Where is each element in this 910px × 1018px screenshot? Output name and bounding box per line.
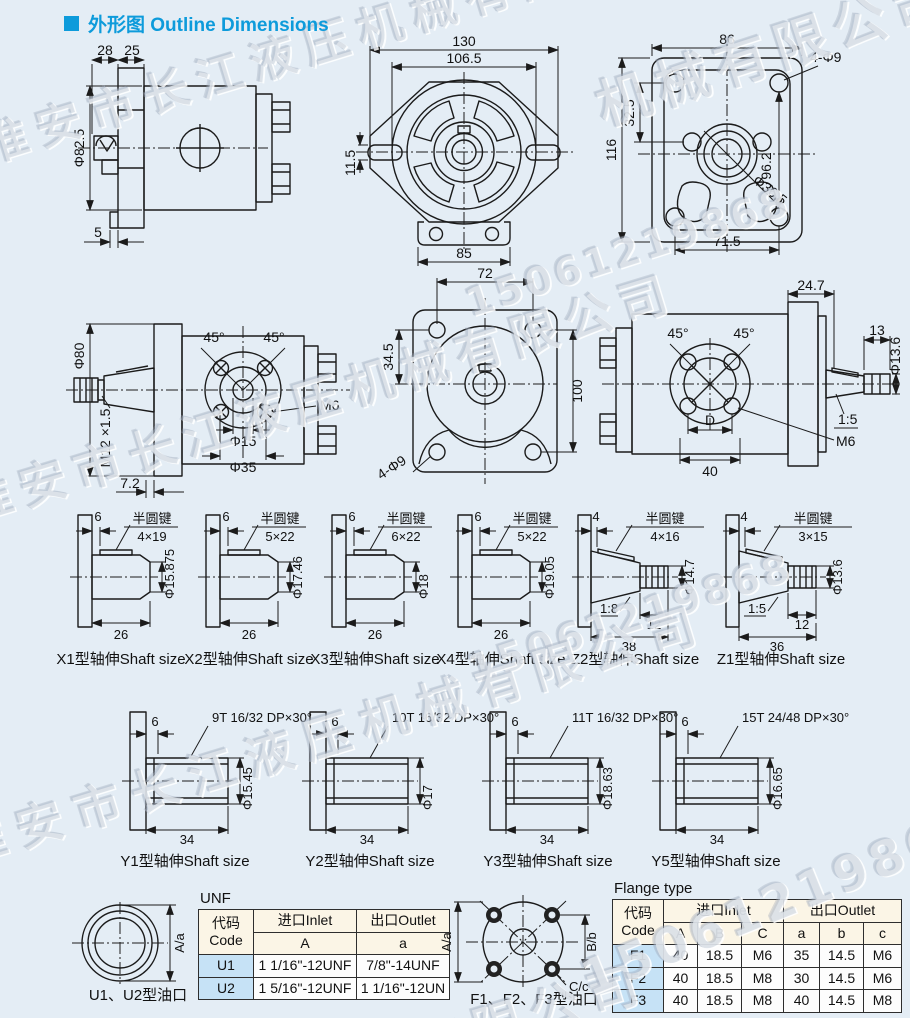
dim-label: 32.5 xyxy=(621,99,637,126)
caption-shaft-z1: Z1型轴伸Shaft size xyxy=(706,648,856,669)
dim-label: 6 xyxy=(474,509,481,524)
dim-label: 34 xyxy=(710,832,724,847)
datasheet-page: 淮安市长江液压机械有限公司 机械有限公司 15061219868 淮安市长江液压… xyxy=(0,0,910,1018)
unf-header-code-zh: 代码 xyxy=(212,915,240,931)
caption-shaft-y3: Y3型轴伸Shaft size xyxy=(468,850,628,871)
dim-label: 34.5 xyxy=(380,343,396,370)
dim-label: Φ19.05 xyxy=(542,556,557,599)
caption-f-port: F1、F2、F3型油口 xyxy=(444,988,624,1009)
dim-label: 4 xyxy=(592,509,599,524)
flange-cell: 14.5 xyxy=(820,945,864,968)
key-size-label: 5×22 xyxy=(265,529,294,544)
dim-label: 26 xyxy=(242,627,256,642)
dim-label: 45° xyxy=(667,325,688,341)
dim-label: 71.5 xyxy=(713,233,740,249)
flange-cell: M8 xyxy=(742,967,784,990)
drawing-shaft-x1: 半圆键 4×19 6 Φ15.875 26 xyxy=(62,505,180,651)
unf-row-inlet: 1 5/16"-12UNF xyxy=(254,977,357,1000)
key-label: 半圆键 xyxy=(260,511,299,526)
dim-label: 28 xyxy=(97,42,113,58)
dim-label: D xyxy=(705,412,715,428)
unf-header-col-a: A xyxy=(254,932,357,955)
dim-label: 4-Φ9 xyxy=(374,452,409,483)
drawing-pump-side-view-threaded-shaft: 45° 45° M6 Φ80 M12 ×1.5 Φ15 Φ35 7.2 xyxy=(58,298,358,500)
unf-row-code: U1 xyxy=(199,955,254,978)
flange-header-col: B xyxy=(698,922,742,945)
flange-header-col: c xyxy=(864,922,902,945)
flange-row-code: F1 xyxy=(613,945,664,968)
flange-cell: M6 xyxy=(864,945,902,968)
dim-label: Φ15 xyxy=(230,433,257,449)
unf-header-code: 代码 Code xyxy=(199,910,254,955)
key-label: 半圆键 xyxy=(793,511,832,526)
flange-table-block: Flange type 代码 Code 进口Inlet 出口Outlet A B… xyxy=(612,880,902,1013)
title-square-icon xyxy=(64,16,79,31)
flange-table-title: Flange type xyxy=(614,880,902,897)
taper-label: 1:8 xyxy=(600,601,618,616)
flange-header-code-en: Code xyxy=(621,922,654,938)
caption-shaft-x1: X1型轴伸Shaft size xyxy=(56,648,186,669)
caption-shaft-z2: Z2型轴伸Shaft size xyxy=(560,648,710,669)
unf-row-outlet: 7/8"-14UNF xyxy=(357,955,450,978)
dim-label: 34 xyxy=(540,832,554,847)
drawing-flange-rear-view: 86 4-Φ9 32.5 116 Φ36.5 96.2 71.5 xyxy=(612,36,907,260)
unf-header-outlet: 出口Outlet xyxy=(357,910,450,933)
unf-table-block: UNF 代码 Code 进口Inlet 出口Outlet A a U1 1 1/… xyxy=(198,890,450,1000)
unf-header-col-a2: a xyxy=(357,932,450,955)
dim-label: 5 xyxy=(94,224,102,240)
key-label: 半圆键 xyxy=(512,511,551,526)
dim-label: Φ13.6 xyxy=(830,559,845,595)
dim-label: 40 xyxy=(702,463,718,479)
dim-label: 6 xyxy=(348,509,355,524)
dim-label: Φ18 xyxy=(416,574,431,599)
key-label: 半圆键 xyxy=(386,511,425,526)
drawing-u-port: A/a xyxy=(62,898,194,990)
flange-cell: M6 xyxy=(742,945,784,968)
flange-row-code: F3 xyxy=(613,990,664,1013)
dim-label: 45° xyxy=(263,329,284,345)
unf-table: 代码 Code 进口Inlet 出口Outlet A a U1 1 1/16"-… xyxy=(198,909,450,1000)
dim-label: A/a xyxy=(172,932,187,952)
drawing-shaft-x2: 半圆键 5×22 6 Φ17.46 26 xyxy=(190,505,308,651)
dim-label: M12 ×1.5 xyxy=(97,408,113,467)
dim-label: Φ82.5 xyxy=(71,129,87,168)
caption-shaft-y2: Y2型轴伸Shaft size xyxy=(290,850,450,871)
flange-cell: 40 xyxy=(664,945,698,968)
caption-u-port: U1、U2型油口 xyxy=(58,984,218,1005)
dim-label: A/a xyxy=(439,931,454,951)
flange-cell: 40 xyxy=(784,990,820,1013)
key-size-label: 5×22 xyxy=(517,529,546,544)
dim-label: 4-Φ9 xyxy=(810,49,842,65)
table-row: F3 40 18.5 M8 40 14.5 M8 xyxy=(613,990,902,1013)
dim-label: 72 xyxy=(477,265,493,281)
flange-cell: 35 xyxy=(784,945,820,968)
dim-label: 13 xyxy=(869,322,885,338)
flange-header-outlet: 出口Outlet xyxy=(784,900,902,923)
flange-cell: 40 xyxy=(664,990,698,1013)
dim-label: 11.5 xyxy=(342,150,358,176)
dim-label: 130 xyxy=(452,33,476,49)
unf-header-code-en: Code xyxy=(209,932,242,948)
flange-cell: 40 xyxy=(664,967,698,990)
pump-side-outline xyxy=(74,324,336,476)
dim-label: 34 xyxy=(360,832,374,847)
flange-header-code-zh: 代码 xyxy=(624,905,652,921)
dim-label: M6 xyxy=(320,397,340,413)
key-size-label: 3×15 xyxy=(798,529,827,544)
dim-label: Φ15.875 xyxy=(162,549,177,599)
dim-label: 1:5 xyxy=(838,411,858,427)
flange-header-code: 代码 Code xyxy=(613,900,664,945)
dim-label: M6 xyxy=(836,433,856,449)
flange-table: 代码 Code 进口Inlet 出口Outlet A B C a b c F1 … xyxy=(612,899,902,1013)
drawing-pump-side-rear-view: 28 25 Φ82.5 5 xyxy=(58,40,320,258)
dim-label: 24.7 xyxy=(797,277,824,293)
flange-row-code: F2 xyxy=(613,967,664,990)
unf-header-inlet: 进口Inlet xyxy=(254,910,357,933)
dim-label: 45° xyxy=(203,329,224,345)
drawing-pump-side-view-tapered-shaft: 45° 45° 24.7 13 Φ13.6 1:5 D 40 M6 xyxy=(592,282,904,487)
drawing-f-port: A/a B/b C/c xyxy=(448,893,613,993)
flange-cell: M6 xyxy=(864,967,902,990)
drawing-shaft-y2: 10T 16/32 DP×30° 6 Φ17 34 xyxy=(292,700,457,850)
dim-label: 116 xyxy=(603,139,619,162)
dim-label: 25 xyxy=(124,42,140,58)
table-row: F2 40 18.5 M8 30 14.5 M6 xyxy=(613,967,902,990)
flange-header-col: a xyxy=(784,922,820,945)
page-title-text: 外形图 Outline Dimensions xyxy=(88,10,329,37)
drawing-shaft-x4: 半圆键 5×22 6 Φ19.05 26 xyxy=(442,505,560,651)
unf-table-title: UNF xyxy=(200,890,450,907)
taper-label: 1:5 xyxy=(748,601,766,616)
key-size-label: 6×22 xyxy=(391,529,420,544)
drawing-shaft-y1: 9T 16/32 DP×30° 6 Φ15.45 34 xyxy=(112,700,277,850)
dim-label: Φ16.65 xyxy=(770,767,785,810)
flange-cell: 18.5 xyxy=(698,990,742,1013)
dim-label: 45° xyxy=(733,325,754,341)
dim-label: Φ13.6 xyxy=(887,337,903,376)
dim-label: 106.5 xyxy=(446,50,481,66)
flange-cell: 30 xyxy=(784,967,820,990)
dim-label: 12 xyxy=(795,617,809,632)
dim-label: 100 xyxy=(569,379,585,403)
dim-label: B/b xyxy=(584,932,599,952)
flange-header-col: b xyxy=(820,922,864,945)
caption-shaft-y5: Y5型轴伸Shaft size xyxy=(636,850,796,871)
key-size-label: 4×19 xyxy=(137,529,166,544)
dim-label: 6 xyxy=(681,714,688,729)
dim-label: 86 xyxy=(719,31,735,47)
dim-label: 7.2 xyxy=(120,475,140,491)
drawing-shaft-z1: 半圆键 3×15 4 1:5 12 36 Φ13.6 xyxy=(714,505,854,653)
flange-header-col: A xyxy=(664,922,698,945)
flange-cell: M8 xyxy=(742,990,784,1013)
drawing-square-flange-front-view: 72 34.5 100 4-Φ9 xyxy=(385,268,590,493)
dim-label: Φ17 xyxy=(420,785,435,810)
table-row: U2 1 5/16"-12UNF 1 1/16"-12UN xyxy=(199,977,450,1000)
flange-cell: 18.5 xyxy=(698,945,742,968)
dim-label: 6 xyxy=(222,509,229,524)
key-size-label: 4×16 xyxy=(650,529,679,544)
dim-label: 34 xyxy=(180,832,194,847)
dim-label: Φ80 xyxy=(71,342,87,369)
flange-cell: 18.5 xyxy=(698,967,742,990)
flange-cell: 14.5 xyxy=(820,990,864,1013)
dim-label: 26 xyxy=(494,627,508,642)
drawing-shaft-z2: 半圆键 4×16 4 1:8 12 38 Φ14.7 xyxy=(566,505,706,653)
unf-row-outlet: 1 1/16"-12UN xyxy=(357,977,450,1000)
flange-cell: M8 xyxy=(864,990,902,1013)
dim-label: Φ35 xyxy=(230,459,257,475)
caption-shaft-x2: X2型轴伸Shaft size xyxy=(184,648,314,669)
key-label: 半圆键 xyxy=(645,511,684,526)
table-row: U1 1 1/16"-12UNF 7/8"-14UNF xyxy=(199,955,450,978)
page-title: 外形图 Outline Dimensions xyxy=(64,10,329,37)
dim-label: 26 xyxy=(114,627,128,642)
flange-header-col: C xyxy=(742,922,784,945)
drawing-pump-front-view: 130 106.5 11.5 85 xyxy=(352,38,580,272)
caption-shaft-x3: X3型轴伸Shaft size xyxy=(310,648,440,669)
drawing-shaft-y3: 11T 16/32 DP×30° 6 Φ18.63 34 xyxy=(472,700,637,850)
dim-label: 6 xyxy=(511,714,518,729)
table-row: F1 40 18.5 M6 35 14.5 M6 xyxy=(613,945,902,968)
dim-label: 12 xyxy=(647,617,661,632)
drawing-shaft-y5: 15T 24/48 DP×30° 6 Φ16.65 34 xyxy=(642,700,807,850)
dim-label: 6 xyxy=(94,509,101,524)
unf-row-code: U2 xyxy=(199,977,254,1000)
dim-label: 85 xyxy=(456,245,472,261)
dim-label: Φ15.45 xyxy=(240,767,255,810)
flange-header-inlet: 进口Inlet xyxy=(664,900,784,923)
caption-shaft-x4: X4型轴伸Shaft size xyxy=(436,648,566,669)
spline-spec-label: 15T 24/48 DP×30° xyxy=(742,710,849,725)
dim-label: 6 xyxy=(331,714,338,729)
dim-label: Φ14.7 xyxy=(682,559,697,595)
drawing-shaft-x3: 半圆键 6×22 6 Φ18 26 xyxy=(316,505,434,651)
caption-shaft-y1: Y1型轴伸Shaft size xyxy=(105,850,265,871)
dim-label: Φ17.46 xyxy=(290,556,305,599)
dim-label: 26 xyxy=(368,627,382,642)
dim-label: Φ18.63 xyxy=(600,767,615,810)
flange-cell: 14.5 xyxy=(820,967,864,990)
dim-label: 4 xyxy=(740,509,747,524)
key-label: 半圆键 xyxy=(132,511,171,526)
dim-label: 6 xyxy=(151,714,158,729)
unf-row-inlet: 1 1/16"-12UNF xyxy=(254,955,357,978)
dim-label: 96.2 xyxy=(758,152,774,179)
